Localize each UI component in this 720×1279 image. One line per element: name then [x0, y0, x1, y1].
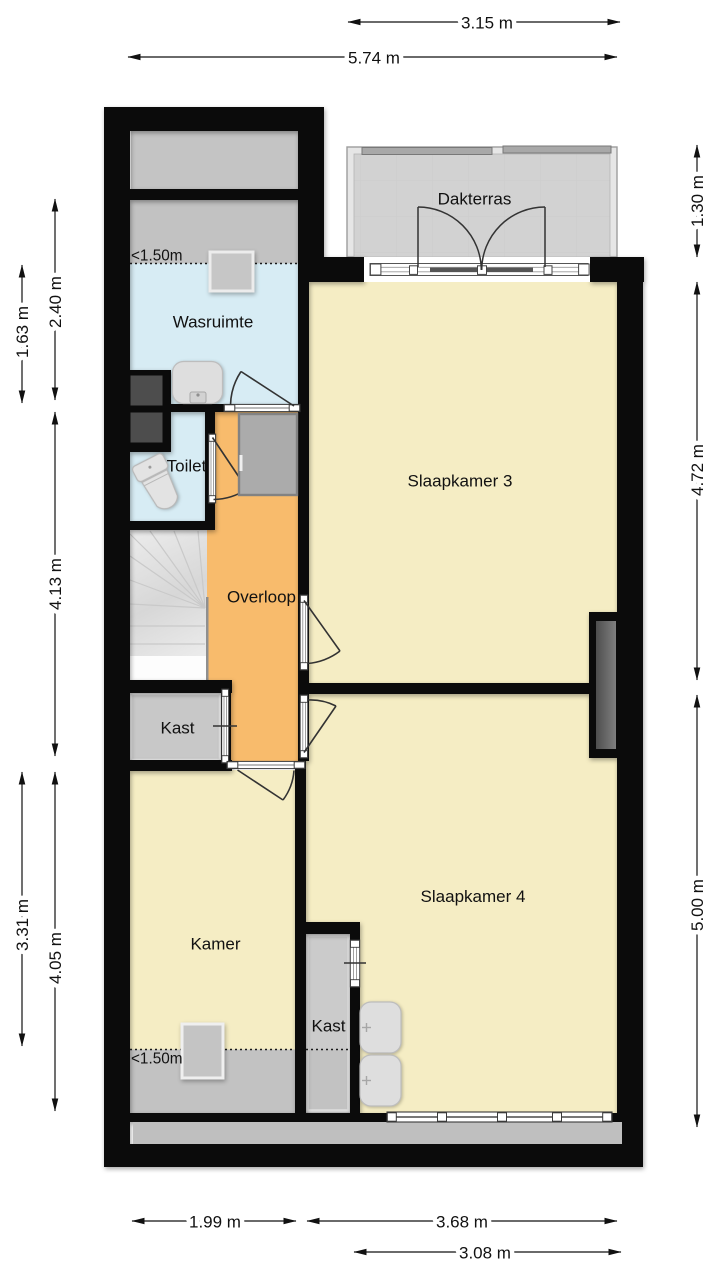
svg-text:Overloop: Overloop: [227, 588, 296, 607]
svg-text:3.15 m: 3.15 m: [461, 14, 513, 33]
svg-text:Kast: Kast: [160, 719, 194, 738]
svg-text:<1.50m: <1.50m: [131, 248, 182, 265]
svg-text:4.72 m: 4.72 m: [688, 444, 707, 496]
svg-text:3.68 m: 3.68 m: [436, 1213, 488, 1232]
svg-text:Kamer: Kamer: [190, 935, 240, 954]
svg-text:2.40 m: 2.40 m: [46, 276, 65, 328]
svg-text:4.13 m: 4.13 m: [46, 558, 65, 610]
svg-text:Slaapkamer 3: Slaapkamer 3: [408, 472, 513, 491]
svg-text:Kast: Kast: [311, 1017, 345, 1036]
svg-text:4.05 m: 4.05 m: [46, 932, 65, 984]
svg-text:1.30 m: 1.30 m: [688, 175, 707, 227]
svg-text:3.31 m: 3.31 m: [13, 899, 32, 951]
svg-text:Dakterras: Dakterras: [438, 190, 512, 209]
svg-text:5.00 m: 5.00 m: [688, 879, 707, 931]
svg-text:3.08 m: 3.08 m: [459, 1244, 511, 1263]
svg-text:1.99 m: 1.99 m: [189, 1213, 241, 1232]
svg-text:Wasruimte: Wasruimte: [173, 313, 254, 332]
svg-text:5.74 m: 5.74 m: [348, 49, 400, 68]
svg-text:Toilet: Toilet: [167, 457, 207, 476]
svg-text:<1.50m: <1.50m: [131, 1051, 182, 1068]
svg-text:1.63 m: 1.63 m: [13, 306, 32, 358]
svg-text:Slaapkamer 4: Slaapkamer 4: [421, 887, 526, 906]
